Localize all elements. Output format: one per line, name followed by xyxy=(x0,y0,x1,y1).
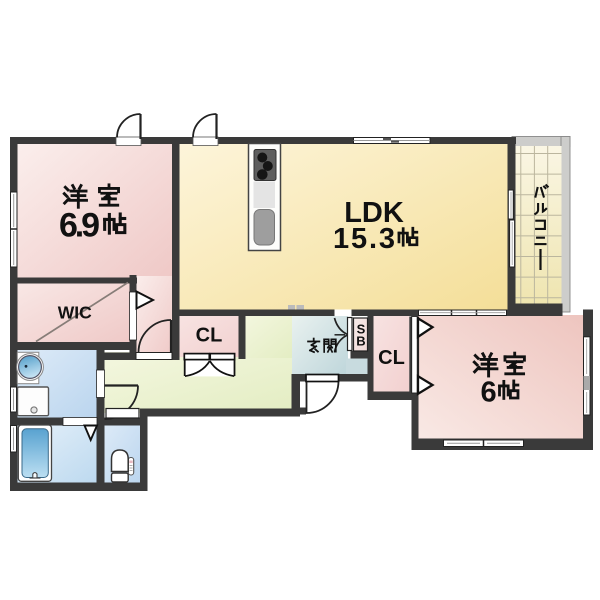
svg-text:6: 6 xyxy=(481,377,497,409)
svg-text:WIC: WIC xyxy=(58,303,92,323)
svg-text:B: B xyxy=(356,334,365,349)
svg-text:CL: CL xyxy=(378,347,405,369)
svg-text:15.3: 15.3 xyxy=(333,223,395,255)
svg-text:6.9: 6.9 xyxy=(59,207,100,245)
svg-text:CL: CL xyxy=(196,325,223,347)
